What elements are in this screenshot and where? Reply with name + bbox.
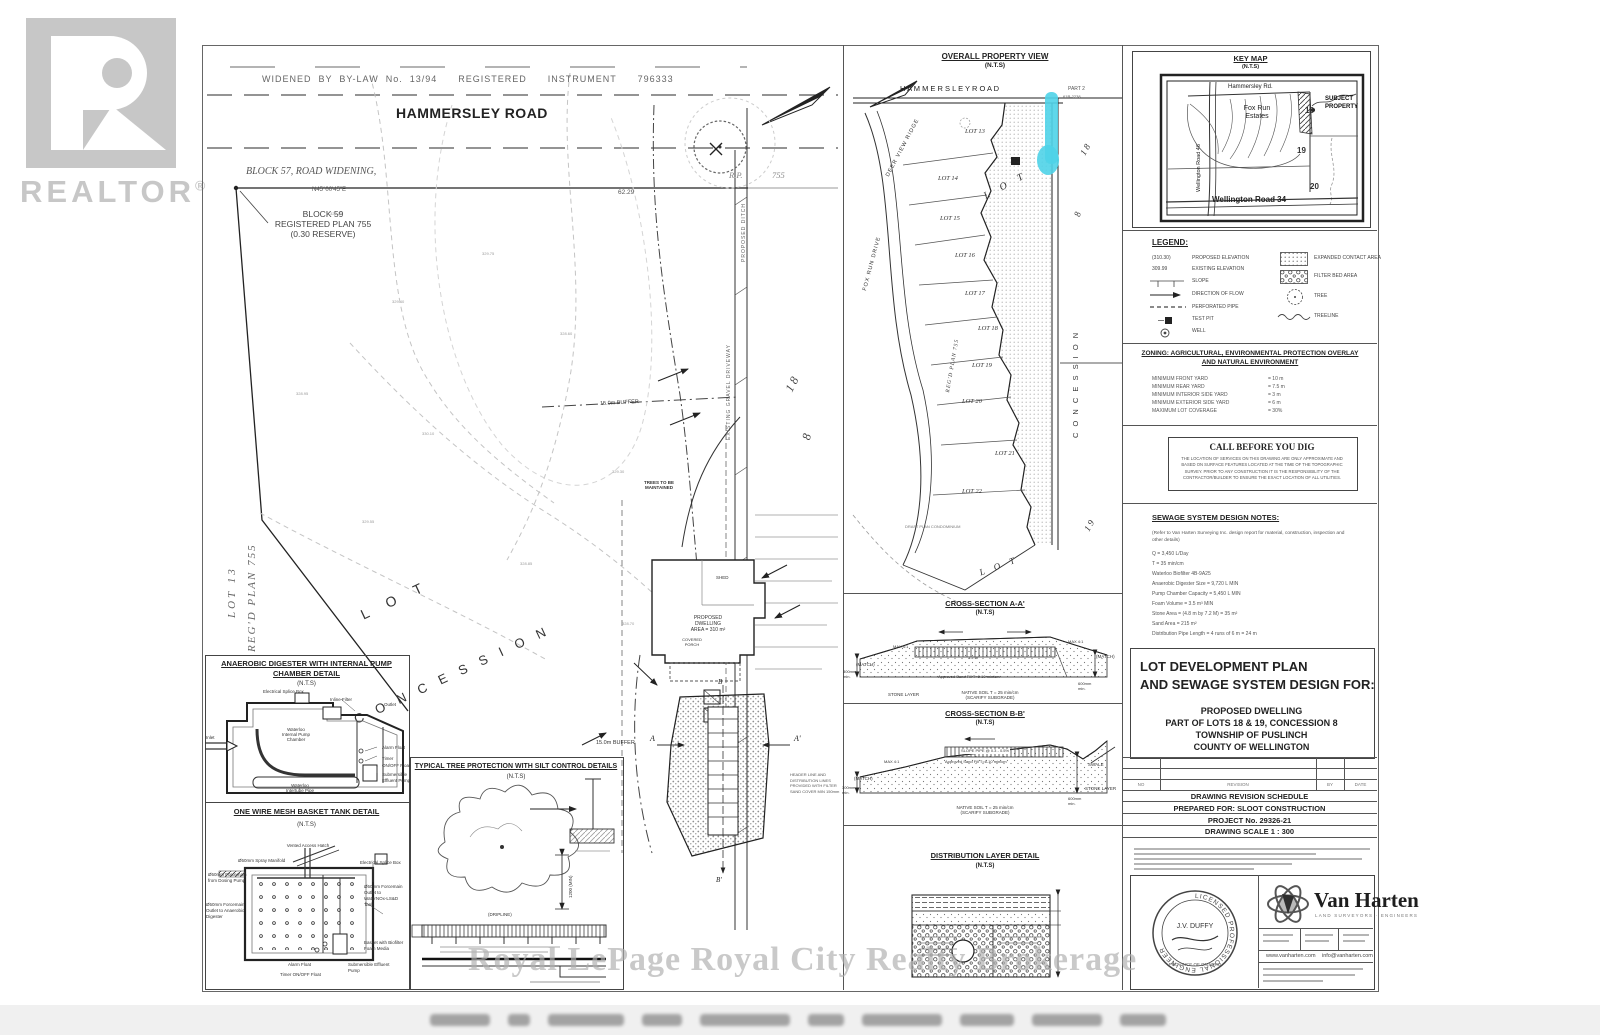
digester-alarm-label: Alarm Float <box>382 745 405 750</box>
fine-print-line <box>1134 868 1254 870</box>
rev-col-date: DATE <box>1344 782 1377 787</box>
scanned-site-plan-sheet: { "nts": "(N.T.S)", "watermark": { "real… <box>0 0 1600 1035</box>
xsecB-300mm: 300mmmin. <box>842 786 855 795</box>
scan-artifact <box>960 1014 1014 1026</box>
elevation-value: 329.55 <box>362 520 374 525</box>
well-icon <box>1160 328 1170 338</box>
buffer-label-2: 15.0m BUFFER <box>596 740 635 746</box>
basket-timer-label: Timer ON/OFF Float <box>280 972 321 977</box>
sewage-title: SEWAGE SYSTEM DESIGN NOTES: <box>1152 514 1279 523</box>
dist-title: DISTRIBUTION LAYER DETAIL <box>905 852 1065 861</box>
sewage-line: T = 35 min/cm <box>1152 562 1184 568</box>
porch-label: COVEREDPORCH <box>672 638 712 647</box>
vh-line <box>1258 950 1373 951</box>
xsecB-title: CROSS-SECTION B-B' <box>905 710 1065 719</box>
shed-label: SHED <box>716 575 729 580</box>
sewage-line: Anaerobic Digester Size = 9,720 L MIN <box>1152 582 1238 588</box>
realtor-wordmark: REALTOR® <box>20 174 209 210</box>
legend-title: LEGEND: <box>1152 238 1188 247</box>
scan-artifact <box>1120 1014 1166 1026</box>
vh-col <box>1300 928 1301 950</box>
overall-lot-20: LOT 20 <box>962 398 982 405</box>
xsecB-match: (MATCH) <box>854 776 873 781</box>
elevation-value: 328.70 <box>622 622 634 627</box>
section-b-marker: B <box>718 678 722 686</box>
realtor-watermark: REALTOR® <box>14 8 204 228</box>
title-block-for3: TOWNSHIP OF PUSLINCH <box>1130 730 1373 740</box>
adjacent-field-lines <box>755 515 838 669</box>
fine-print-line <box>1134 853 1316 855</box>
elevation-value: 328.85 <box>520 562 532 567</box>
keymap-nts: (N.T.S) <box>1132 64 1369 70</box>
basket-manifold-label: Ø50mm Spray Manifold <box>238 858 285 863</box>
contour-lines <box>260 73 712 660</box>
cyan-highlighter-blob <box>1037 145 1059 175</box>
realtor-r-logo <box>26 18 178 170</box>
sewage-line: Q = 3,450 L/Day <box>1152 552 1189 558</box>
title-block-for2: PART OF LOTS 18 & 19, CONCESSION 8 <box>1130 718 1373 728</box>
property-boundary-west <box>236 188 408 711</box>
van-harten-web: www.vanharten.com <box>1266 953 1316 959</box>
xsecA-300mm: 300mmmin. <box>843 670 856 679</box>
section-a2-marker: A' <box>794 734 801 743</box>
vh-contact-line <box>1343 940 1365 942</box>
basket-hatch-label: Vented Access Hatch <box>258 843 358 848</box>
legend-label-flow: DIRECTION OF FLOW <box>1192 292 1244 298</box>
middle-column-drawing <box>845 45 1122 990</box>
right-sep-1 <box>1122 230 1377 231</box>
digester-outlet-label: Outlet <box>384 702 396 707</box>
fine-print-line <box>1134 848 1370 850</box>
scan-artifact <box>862 1014 942 1026</box>
zoning-title-1: ZONING: AGRICULTURAL, ENVIRONMENTAL PROT… <box>1126 350 1374 357</box>
overall-lot-15: LOT 15 <box>940 215 960 222</box>
section-a-marker: A <box>650 734 655 743</box>
xsecA-mound: 1.2 m <box>968 656 978 661</box>
xsecA-native: NATIVE SOIL T = 25 min/cm(SCARIFY SUBGRA… <box>930 690 1050 700</box>
elevation-value: 328.95 <box>296 392 308 397</box>
slope-symbol-icon <box>1150 278 1186 288</box>
digester-chamber-label: WaterlooInternal PumpChamber <box>268 727 324 743</box>
digester-onoff-label: ON/OFF Float <box>382 763 410 768</box>
sewage-line: Distribution Pipe Length = 4 runs of 6 m… <box>1152 632 1257 638</box>
rev-line <box>1122 790 1377 791</box>
vh-contact-line <box>1305 934 1333 936</box>
zoning-row-value: = 6 m <box>1268 401 1281 407</box>
vh-contact-line <box>1263 934 1293 936</box>
title-block-line2: AND SEWAGE SYSTEM DESIGN FOR: <box>1140 678 1375 693</box>
overall-lot-17: LOT 17 <box>965 290 985 297</box>
sewage-line: Foam Volume = 3.5 m³ MIN <box>1152 602 1213 608</box>
vh-fine-line <box>1263 974 1355 976</box>
xsecA-600mm: 600mmmin. <box>1078 682 1091 691</box>
basket-fm-dosing-label: Ø50mm Forcemainfrom Dosing Pump <box>208 872 252 884</box>
treeline-icon <box>1278 312 1310 322</box>
column-separator-1 <box>843 45 844 990</box>
xsecB-swale: SWALE <box>1088 762 1104 767</box>
zoning-row-label: MINIMUM REAR YARD <box>1152 385 1205 391</box>
overall-concession-word: C O N C E S S I O N <box>1072 331 1081 438</box>
overall-lot-13: LOT 13 <box>965 128 985 135</box>
bearing-label: N45°00'45"E <box>312 187 346 194</box>
overall-lot-14: LOT 14 <box>938 175 958 182</box>
overall-title: OVERALL PROPERTY VIEW <box>905 52 1085 61</box>
hammersley-road-label: HAMMERSLEY ROAD <box>396 105 548 121</box>
digester-pipe-label: WaterlooIntertube Pipe <box>270 783 330 793</box>
scan-artifact <box>430 1014 490 1026</box>
north-arrow <box>762 87 830 125</box>
distance-label: 62.29 <box>618 189 634 196</box>
brokerage-watermark: Royal LePage Royal City Realty Brokerage <box>468 940 1137 979</box>
bylaw-note: WIDENED BY BY-LAW No. 13/94 REGISTERED I… <box>262 74 674 84</box>
xsecA-max-right: MAX 4:1 <box>1068 640 1083 645</box>
basket-fm-tank-label: Ø50mm ForcemainOutlet to WaterNOx-LS&DTa… <box>364 884 408 907</box>
overall-lot-16: LOT 16 <box>955 252 975 259</box>
engineer-seal: LICENSED PROFESSIONAL ENGINEER J.V. DUFF… <box>1150 888 1240 978</box>
xsecB-stone: STONE LAYER <box>1085 786 1116 791</box>
dist-nts: (N.T.S) <box>905 863 1065 870</box>
gravel-driveway-label: EXISTING GRAVEL DRIVEWAY <box>727 344 733 440</box>
rp-num-label: 755 <box>772 171 785 181</box>
keymap-wellington46-label: Wellington Road 46 <box>1196 144 1202 192</box>
rev-bar-prepared: PREPARED FOR: SLOOT CONSTRUCTION <box>1122 805 1377 814</box>
title-block-for4: COUNTY OF WELLINGTON <box>1130 742 1373 752</box>
xsecB-max: MAX 4:1 <box>884 760 899 765</box>
keymap-18: 18 <box>1305 106 1314 115</box>
flow-arrow-icon <box>1150 291 1186 299</box>
digester-filter-label: Inline Filter <box>330 697 352 702</box>
distribution-cell <box>708 707 738 835</box>
vh-fine-line <box>1263 968 1363 970</box>
xsecA-sand: Approved Sand Fill T=6-10 min/cm <box>938 675 1000 680</box>
basket-fm-digester-label: Ø50mm ForcemainOutlet to AnaerobicDigest… <box>206 902 252 920</box>
flow-arrows <box>582 369 800 745</box>
sewage-line: Pump Chamber Capacity = 5,450 L MIN <box>1152 592 1241 598</box>
xsecA-title: CROSS-SECTION A-A' <box>905 600 1065 609</box>
keymap-19: 19 <box>1297 146 1306 155</box>
keymap-foxrun-label: Fox RunEstates <box>1230 105 1284 121</box>
rev-bar-schedule: DRAWING REVISION SCHEDULE <box>1122 793 1377 802</box>
overall-part-label: PART 2 <box>1068 87 1085 93</box>
overall-road-label: H A M M E R S L E Y R O A D <box>900 85 999 94</box>
legend-label-filterbed: FILTER BED AREA <box>1314 274 1357 280</box>
elevation-value: 329.15 <box>330 212 342 217</box>
legend-label-proposed-elev: PROPOSED ELEVATION <box>1192 256 1249 262</box>
right-sep-4 <box>1122 503 1377 504</box>
keymap-20: 20 <box>1310 182 1319 191</box>
overall-part2-label: 61R-2238 <box>1063 95 1081 100</box>
seal-bottom-text: PROVINCE OF ONTARIO <box>1169 962 1222 967</box>
call-dig-body: THE LOCATION OF SERVICES ON THIS DRAWING… <box>1174 456 1350 481</box>
elevation-value: 329.40 <box>392 300 404 305</box>
overall-lot-19: LOT 19 <box>972 362 992 369</box>
block57-label: BLOCK 57, ROAD WIDENING, <box>246 166 376 178</box>
legend-sym-existing-elev: 309.99 <box>1152 267 1167 273</box>
regd-plan-vertical-label: REG'D PLAN 755 <box>246 543 259 652</box>
van-harten-name: Van Harten <box>1314 888 1419 912</box>
vh-line <box>1258 928 1373 929</box>
xsecA-match-right: (MATCH) <box>1096 654 1115 659</box>
legend-label-tree: TREE <box>1314 294 1327 300</box>
rev-col-by: BY <box>1316 782 1344 787</box>
overall-nts: (N.T.S) <box>905 62 1085 69</box>
sewage-line: Sand Area = 215 m² <box>1152 622 1197 628</box>
rev-line <box>1122 837 1377 838</box>
xsecB-sand: Approved Sand Fill T=6-10 min/cm <box>945 760 1007 765</box>
zoning-row-value: = 30% <box>1268 409 1282 415</box>
xsecB-nts: (N.T.S) <box>905 720 1065 727</box>
fine-print-line <box>1134 863 1292 865</box>
overall-lot-22: LOT 22 <box>962 488 982 495</box>
legend-label-testpit: TEST PIT <box>1192 317 1214 323</box>
call-dig-title: CALL BEFORE YOU DIG <box>1168 442 1356 452</box>
legend-label-existing-elev: EXISTING ELEVATION <box>1192 267 1244 273</box>
contact-area-swatch <box>1280 252 1308 266</box>
header-line-note: HEADER LINE ANDDISTRIBUTION LINES PROVID… <box>790 772 850 794</box>
basket-splice-label: Electrical Splice Box <box>360 860 401 865</box>
sewage-intro: (Refer to Van Harten Surveying Inc. desi… <box>1152 530 1344 544</box>
title-block-for1: PROPOSED DWELLING <box>1130 706 1373 716</box>
keymap-hammersley-label: Hammersley Rd. <box>1228 84 1273 91</box>
perforated-pipe-icon <box>1150 304 1186 310</box>
dwelling-label: PROPOSEDDWELLINGAREA = 310 m² <box>678 616 738 633</box>
elevation-value: 330.10 <box>422 432 434 437</box>
zoning-title-2: AND NATURAL ENVIRONMENT <box>1126 359 1374 366</box>
scan-artifact <box>642 1014 682 1026</box>
legend-label-pipe: PERFORATED PIPE <box>1192 305 1239 311</box>
xsecB-600mm: 600mmmin. <box>1068 797 1081 806</box>
draft-plan-label: DRAFT PLAN CONDOMINIUM <box>905 525 960 530</box>
rev-col-no: NO <box>1122 782 1160 787</box>
zoning-row-label: MINIMUM INTERIOR SIDE YARD <box>1152 393 1228 399</box>
vh-col <box>1338 928 1339 950</box>
zoning-row-label: MINIMUM FRONT YARD <box>1152 377 1208 383</box>
sewage-line: Waterloo Biofilter 4B-9A25 <box>1152 572 1211 578</box>
digester-timer-label: Timer <box>382 756 393 761</box>
swale-line <box>653 105 702 615</box>
zoning-row-value: = 3 m <box>1268 393 1281 399</box>
sewage-line: Stone Area = (4.8 m by 7.2 M) = 35 m² <box>1152 612 1237 618</box>
tree-dim-label: 1200 (MIN) <box>568 875 573 898</box>
elevation-value: 329.75 <box>482 252 494 257</box>
legend-label-well: WELL <box>1192 329 1206 335</box>
lot13-vertical-label: LOT 13 <box>226 566 239 618</box>
section-b2-marker: B' <box>716 876 722 884</box>
scan-artifact <box>548 1014 624 1026</box>
rev-bar-scale: DRAWING SCALE 1 : 300 <box>1122 828 1377 837</box>
right-sep-2 <box>1122 343 1377 344</box>
vh-contact-line <box>1263 940 1289 942</box>
keymap-title: KEY MAP <box>1132 55 1369 64</box>
right-sep-3 <box>1122 425 1377 426</box>
legend-label-contact: EXPANDED CONTACT AREA <box>1314 256 1381 262</box>
van-harten-tagline: LAND SURVEYORS · ENGINEERS <box>1315 913 1418 918</box>
filter-bed-swatch <box>1280 270 1308 284</box>
xsecB-slope: SLOPE PIPE @ 0.3 - 0.5% <box>960 749 1010 754</box>
xsecA-nts: (N.T.S) <box>905 610 1065 617</box>
tree-legend-icon <box>1286 288 1304 306</box>
fine-print-line <box>1134 858 1362 860</box>
scan-artifact <box>508 1014 530 1026</box>
trees-maintained-note: TREES TO BEMAINTAINED <box>636 480 682 490</box>
overall-lot-18: LOT 18 <box>978 325 998 332</box>
legend-label-slope: SLOPE <box>1192 279 1209 285</box>
legend-label-treeline: TREELINE <box>1314 314 1338 320</box>
column-separator-2 <box>1122 45 1123 990</box>
covered-porch-outline <box>670 663 740 681</box>
van-harten-logo <box>1264 880 1312 928</box>
xsecB-native: NATIVE SOIL T = 25 min/cm(SCARIFY SUBGRA… <box>920 805 1050 815</box>
xsecA-stone: STONE LAYER <box>888 692 919 697</box>
zoning-row-value: = 7.5 m <box>1268 385 1285 391</box>
rev-bar-project: PROJECT No. 29326-21 <box>1122 817 1377 826</box>
digester-inlet-label: Inlet <box>206 735 215 740</box>
vh-contact-line <box>1305 940 1329 942</box>
block59-label: BLOCK 59REGISTERED PLAN 755(0.30 RESERVE… <box>258 210 388 239</box>
rp-label: R.P. <box>729 171 743 181</box>
tree-dripline-label: (DRIPLINE) <box>488 912 512 917</box>
elevation-value: 328.60 <box>560 332 572 337</box>
van-harten-email: info@vanharten.com <box>1322 953 1373 959</box>
vh-contact-line <box>1343 934 1369 936</box>
xsecA-max-left: MAX 4:1 <box>893 645 908 650</box>
digester-splice-label: Electrical Splice Box <box>263 689 304 694</box>
scan-artifact <box>700 1014 790 1026</box>
xsecA-match-left: (MATCH) <box>856 662 875 667</box>
vh-fine-line <box>1263 980 1323 982</box>
bottom-scan-strip <box>0 1005 1600 1035</box>
keymap-wellington34-label: Wellington Road 34 <box>1212 195 1286 204</box>
zoning-row-label: MAXIMUM LOT COVERAGE <box>1152 409 1217 415</box>
vh-divider <box>1258 875 1259 988</box>
proposed-ditch-label: PROPOSED DITCH <box>742 203 748 262</box>
proposed-dwelling-footprint <box>652 560 765 663</box>
test-pit-icon <box>1158 316 1178 325</box>
zoning-row-label: MINIMUM EXTERIOR SIDE YARD <box>1152 401 1229 407</box>
scan-artifact <box>1032 1014 1102 1026</box>
rev-col-revision: REVISION <box>1160 782 1316 787</box>
legend-sym-proposed-elev: (310.30) <box>1152 256 1171 262</box>
zoning-row-value: = 10 m <box>1268 377 1283 383</box>
basket-media-label: Basket with BiofilterFoam Media <box>364 940 408 952</box>
scan-artifact <box>808 1014 844 1026</box>
basket-pump-label: Submersible EffluentPump <box>348 962 394 974</box>
seal-name-text: J.V. DUFFY <box>1177 923 1214 930</box>
overall-lot-21: LOT 21 <box>995 450 1015 457</box>
basket-alarm-label: Alarm Float <box>288 962 311 967</box>
vh-line <box>1258 962 1373 963</box>
title-block-line1: LOT DEVELOPMENT PLAN <box>1140 660 1308 675</box>
keymap-subject-label: SUBJECTPROPERTY <box>1325 96 1358 112</box>
elevation-value: 329.30 <box>612 470 624 475</box>
